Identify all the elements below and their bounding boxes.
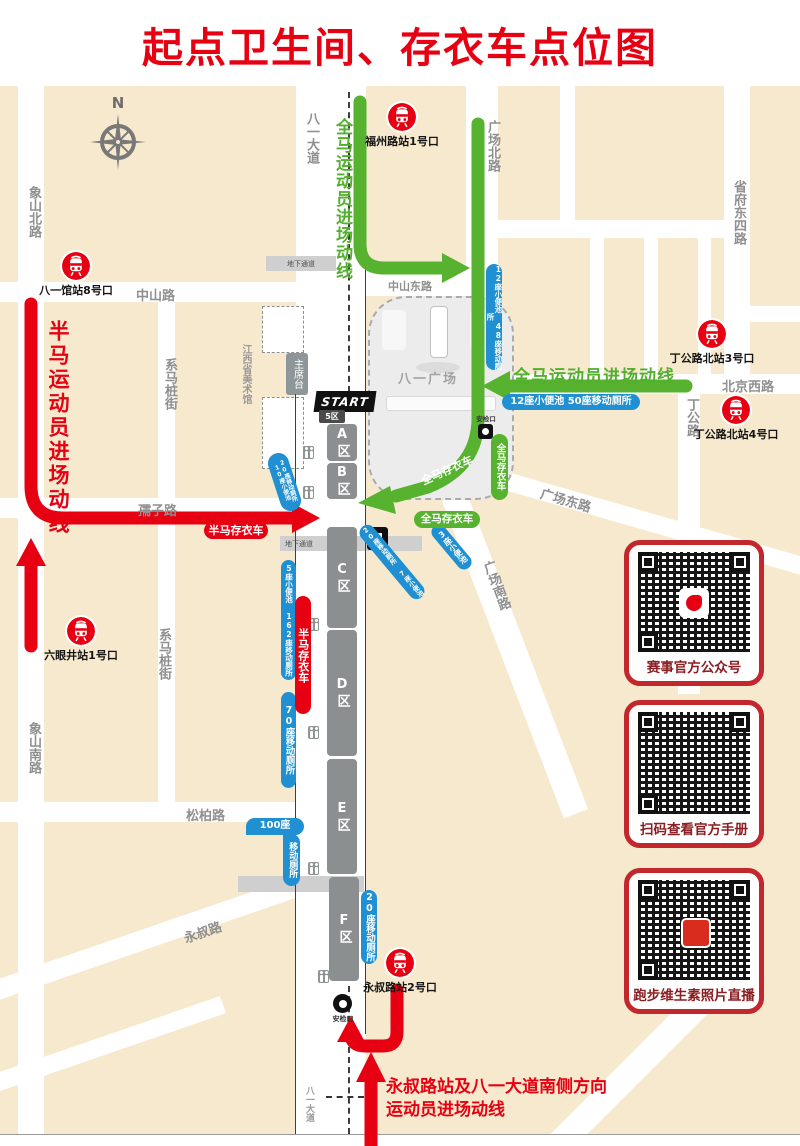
label-beijing-west: 北京西路 bbox=[722, 376, 774, 395]
toilet-icon bbox=[308, 862, 319, 875]
security-gate-icon bbox=[333, 994, 352, 1013]
full-storage-pill-v: 全马存衣车 bbox=[491, 434, 508, 500]
station-fuzhoulu: 福州路站1号口 bbox=[347, 103, 457, 149]
label-bayi: 八一大道 bbox=[302, 112, 321, 164]
label-zhongshan: 中山路 bbox=[136, 285, 175, 304]
toilet-pill-70: 70座移动厕所 bbox=[281, 692, 296, 788]
toilet-icon bbox=[308, 726, 319, 739]
metro-icon bbox=[388, 103, 416, 131]
qr-logo bbox=[679, 588, 709, 618]
compass: N bbox=[90, 94, 146, 176]
full-route-gcn bbox=[396, 124, 478, 496]
zone-b: B区 bbox=[327, 463, 357, 499]
label-zhongshan-east: 中山东路 bbox=[388, 278, 432, 294]
south-route-label: 永叔路站及八一大道南侧方向 运动员进场动线 bbox=[386, 1076, 607, 1122]
compass-icon bbox=[90, 112, 146, 172]
qr-code bbox=[638, 712, 750, 814]
label-ximazhuang-1: 系马桩街 bbox=[160, 358, 179, 410]
toilet-pill-100-h: 100座 bbox=[246, 818, 304, 835]
station-dinggonglu-4: 丁公路北站4号口 bbox=[681, 396, 791, 442]
map-canvas: 八一广场 主席台 江西省美术馆 地下通道 地下通道 地下通道 八一大道 bbox=[0, 86, 800, 1146]
toilet-icon bbox=[303, 446, 314, 459]
station-yongshulu: 永叔路站2号口 bbox=[345, 949, 455, 995]
zone-5: 5区 bbox=[319, 410, 345, 423]
station-dinggonglu-3: 丁公路北站3号口 bbox=[657, 320, 767, 366]
zone-e: E区 bbox=[327, 759, 357, 874]
security-gate-south: 安检口 bbox=[325, 994, 361, 1024]
station-liuyanjing: 六眼井站1号口 bbox=[26, 617, 136, 663]
page-title: 起点卫生间、存衣车点位图 bbox=[0, 14, 800, 74]
qr-card-official-account: 赛事官方公众号 bbox=[624, 540, 764, 686]
label-xiangshan-south: 象山南路 bbox=[24, 722, 43, 774]
qr-label: 赛事官方公众号 bbox=[647, 656, 742, 676]
toilet-pill-guangchangbei: 12座小便池 48座移动厕所 bbox=[486, 264, 502, 370]
toilet-icon bbox=[303, 486, 314, 499]
qr-label: 跑步维生素照片直播 bbox=[633, 984, 755, 1004]
qr-card-manual: 扫码查看官方手册 bbox=[624, 700, 764, 848]
toilet-pill-beijingxi: 12座小便池 50座移动厕所 bbox=[502, 394, 640, 410]
full-storage-pill-h: 全马存衣车 bbox=[414, 511, 480, 528]
toilet-icon bbox=[318, 970, 329, 983]
half-storage-pill-v: 半马存衣车 bbox=[295, 596, 311, 714]
zone-c: C区 bbox=[327, 527, 357, 628]
full-route-label-horizontal: 全马运动员进场动线 bbox=[513, 362, 675, 387]
map-poster: 起点卫生间、存衣车点位图 八一广场 bbox=[0, 0, 800, 1146]
metro-icon bbox=[62, 252, 90, 280]
metro-icon bbox=[67, 617, 95, 645]
label-shengfu-east4: 省府东四路 bbox=[729, 180, 748, 245]
qr-card-photo-live: 跑步维生素照片直播 bbox=[624, 868, 764, 1014]
security-gate-icon bbox=[478, 424, 493, 439]
label-xiangshan-north: 象山北路 bbox=[24, 186, 43, 238]
metro-icon bbox=[722, 396, 750, 424]
toilet-pill-100-v: 移动厕所 bbox=[283, 834, 300, 886]
half-route-liuyanjing-arrow bbox=[16, 538, 46, 566]
zone-d: D区 bbox=[327, 630, 357, 756]
qr-code bbox=[638, 880, 750, 980]
label-songbai: 松柏路 bbox=[186, 805, 225, 824]
compass-n-label: N bbox=[90, 94, 146, 112]
metro-icon bbox=[386, 949, 414, 977]
zone-a: A区 bbox=[327, 424, 357, 461]
south-route-bottom-arrow bbox=[356, 1052, 386, 1082]
label-guangchang-north: 广场北路 bbox=[483, 120, 502, 172]
start-label: START bbox=[320, 395, 369, 409]
half-storage-pill-h: 半马存衣车 bbox=[204, 522, 268, 539]
toilet-pill-d-west: 5座小便池 162座移动厕所 bbox=[281, 560, 296, 680]
half-route-label: 半马运动员进场动线 bbox=[43, 320, 73, 536]
qr-logo bbox=[681, 918, 711, 948]
label-ximazhuang-2: 系马桩街 bbox=[154, 628, 173, 680]
qr-label: 扫码查看官方手册 bbox=[640, 818, 748, 838]
metro-icon bbox=[698, 320, 726, 348]
station-bayiguan: 八一馆站8号口 bbox=[21, 252, 131, 298]
start-banner: START bbox=[314, 391, 377, 412]
full-route-gcn-arrow bbox=[358, 486, 396, 514]
qr-code bbox=[638, 552, 750, 652]
full-route-top-arrow bbox=[442, 253, 470, 283]
label-ruzi: 孺子路 bbox=[138, 500, 177, 519]
